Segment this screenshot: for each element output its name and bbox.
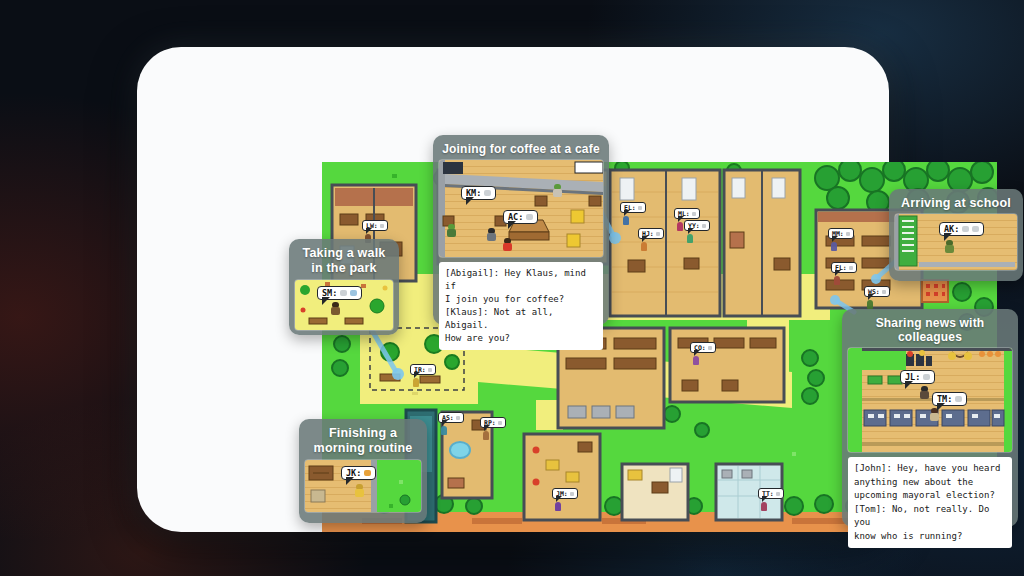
character-sprite (693, 356, 699, 365)
thought-icon (656, 232, 660, 236)
ac-speech-bubble: AC: (503, 210, 538, 224)
bubble-initials: LW: (366, 222, 378, 230)
character-sprite (503, 238, 512, 251)
coffee-dialogue: [Abigail]: Hey Klaus, mind if I join you… (439, 262, 603, 350)
callout-title: Sharing news with colleagues (848, 313, 1012, 348)
bubble-initials: IR: (414, 366, 426, 374)
character-sprite (483, 431, 489, 440)
character-sprite (687, 234, 693, 243)
thought-icon (380, 224, 384, 228)
jl-speech-bubble: JL: (900, 370, 935, 384)
thought-icon (350, 290, 357, 296)
bubble-initials: KM: (466, 188, 481, 198)
character-sprite (447, 224, 456, 237)
bubble-initials: JL: (905, 372, 920, 382)
bubble-initials: CO: (694, 344, 706, 352)
thought-icon (340, 290, 347, 296)
cafe-scene: KM: AC: (439, 160, 603, 257)
bubble-initials: AC: (508, 212, 523, 222)
map-speech-bubble: RP: (480, 417, 506, 428)
character-sprite (355, 484, 364, 497)
callout-title: Joining for coffee at a cafe (439, 139, 603, 160)
map-speech-bubble: YY: (684, 220, 710, 231)
thought-icon (456, 416, 460, 420)
map-speech-bubble: WS: (864, 286, 890, 297)
bubble-initials: TT: (762, 490, 774, 498)
bubble-initials: EL: (624, 204, 636, 212)
bubble-initials: WS: (868, 288, 880, 296)
character-sprite (555, 502, 561, 511)
character-sprite (677, 222, 683, 231)
map-speech-bubble: JM: (552, 488, 578, 499)
callout-coffee-cafe: Joining for coffee at a cafe (433, 135, 609, 325)
map-speech-bubble: HJ: (638, 228, 664, 239)
map-speech-bubble: EL: (620, 202, 646, 213)
map-speech-bubble: MM: (828, 228, 854, 239)
dorm-scene: JL: TM: (848, 348, 1012, 452)
sm-speech-bubble: SM: (317, 286, 362, 300)
bubble-initials: JK: (346, 468, 361, 478)
thought-icon (692, 212, 696, 216)
callout-title: Finishing a morning routine (305, 423, 421, 460)
jk-speech-bubble: JK: (341, 466, 376, 480)
character-sprite (331, 302, 340, 315)
thought-icon (846, 232, 850, 236)
bubble-initials: MM: (832, 230, 844, 238)
character-sprite (623, 216, 629, 225)
character-sprite (641, 242, 647, 251)
figure-card: LW: EL: ML: YY: HJ: MM: FL: WS: IR: CO: … (137, 47, 889, 532)
bubble-initials: FL: (835, 264, 847, 272)
news-dialogue: [John]: Hey, have you heard anything new… (848, 457, 1012, 548)
park-scene: SM: (295, 280, 393, 330)
callout-arriving-school: Arriving at school AK: (889, 189, 1023, 281)
map-speech-bubble: ML: (674, 208, 700, 219)
school-scene: AK: (895, 214, 1017, 270)
thought-icon (962, 226, 969, 232)
map-speech-bubble: AS: (438, 412, 464, 423)
character-sprite (920, 386, 929, 399)
character-sprite (553, 184, 562, 197)
bubble-initials: SM: (322, 288, 337, 298)
callout-title: Taking a walk in the park (295, 243, 393, 280)
bubble-initials: RP: (484, 419, 496, 427)
thought-icon (708, 346, 712, 350)
thought-icon (498, 421, 502, 425)
tm-speech-bubble: TM: (932, 392, 967, 406)
km-speech-bubble: KM: (461, 186, 496, 200)
map-speech-bubble: FL: (831, 262, 857, 273)
bubble-initials: YY: (688, 222, 700, 230)
character-sprite (761, 502, 767, 511)
thought-icon (570, 492, 574, 496)
thought-icon (702, 224, 706, 228)
thought-icon (526, 214, 533, 220)
thought-icon (428, 368, 432, 372)
character-sprite (945, 240, 954, 253)
character-sprite (834, 276, 840, 285)
object-icon (364, 470, 371, 476)
bubble-initials: HJ: (642, 230, 654, 238)
character-sprite (867, 300, 873, 309)
character-sprite (487, 228, 496, 241)
thought-icon (849, 266, 853, 270)
character-sprite (413, 378, 419, 387)
callout-morning-routine: Finishing a morning routine JK: (299, 419, 427, 523)
callout-walk-in-park: Taking a walk in the park SM: (289, 239, 399, 335)
thought-icon (638, 206, 642, 210)
map-speech-bubble: LW: (362, 220, 388, 231)
thought-icon (776, 492, 780, 496)
map-speech-bubble: CO: (690, 342, 716, 353)
map-speech-bubble: TT: (758, 488, 784, 499)
character-sprite (441, 426, 447, 435)
callout-sharing-news: Sharing news with colleagues (842, 309, 1018, 527)
scene-art (848, 348, 1012, 452)
ak-speech-bubble: AK: (939, 222, 984, 236)
bubble-initials: JM: (556, 490, 568, 498)
thought-icon (484, 190, 491, 196)
character-sprite (831, 242, 837, 251)
callout-title: Arriving at school (895, 193, 1017, 214)
thought-icon (923, 374, 930, 380)
bubble-initials: AK: (944, 224, 959, 234)
thought-icon (972, 226, 979, 232)
map-speech-bubble: IR: (410, 364, 436, 375)
scene-art (439, 160, 603, 257)
house-scene: JK: (305, 460, 421, 512)
bubble-initials: ML: (678, 210, 690, 218)
thought-icon (955, 396, 962, 402)
bubble-initials: TM: (937, 394, 952, 404)
bubble-initials: AS: (442, 414, 454, 422)
thought-icon (882, 290, 886, 294)
